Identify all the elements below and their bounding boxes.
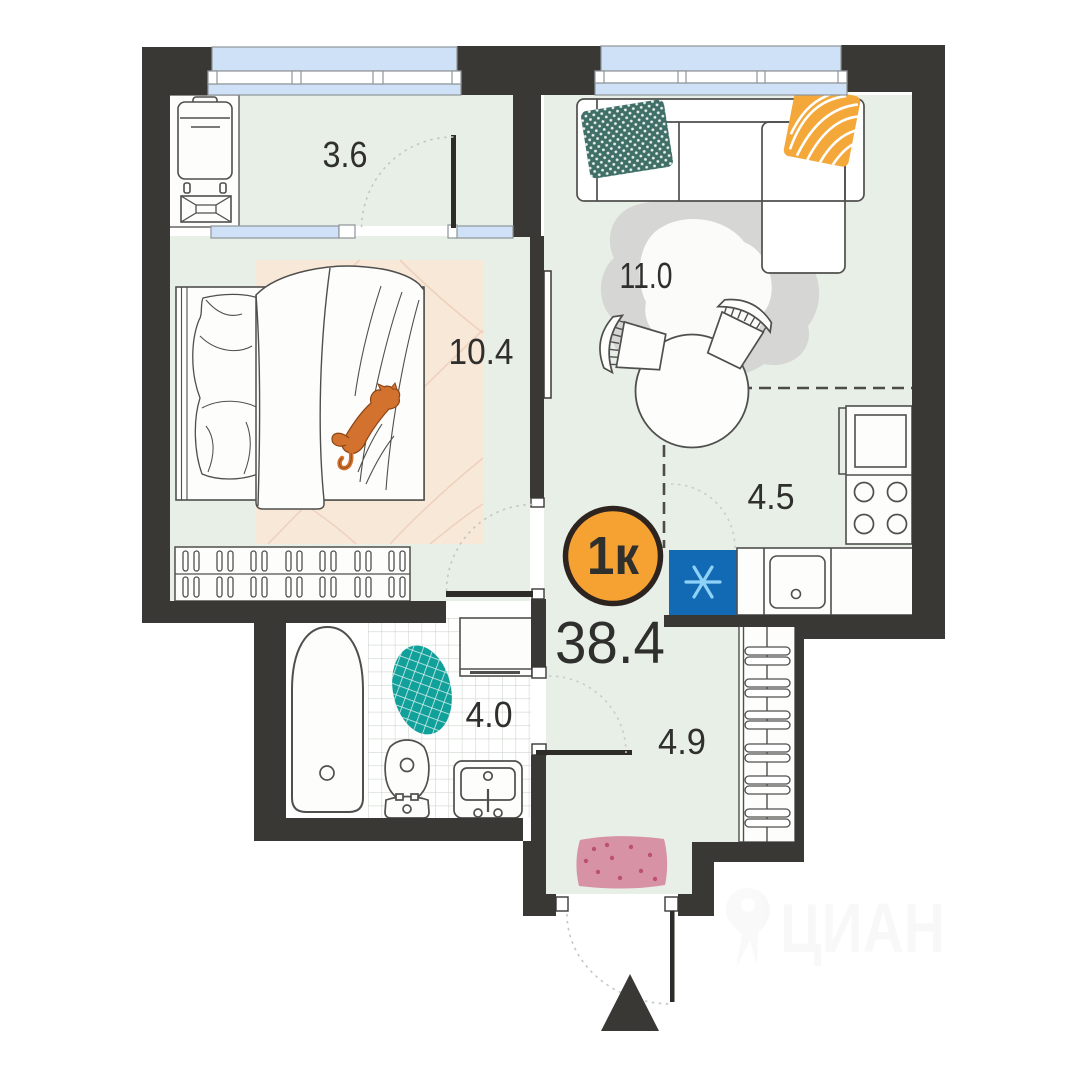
svg-text:4.9: 4.9 bbox=[658, 721, 706, 762]
svg-text:4.5: 4.5 bbox=[748, 476, 795, 517]
svg-text:ЦИАН: ЦИАН bbox=[780, 889, 945, 967]
svg-text:3.6: 3.6 bbox=[323, 134, 368, 175]
svg-text:38.4: 38.4 bbox=[555, 610, 665, 676]
svg-text:1к: 1к bbox=[587, 526, 640, 586]
svg-text:11.0: 11.0 bbox=[620, 255, 673, 296]
svg-text:10.4: 10.4 bbox=[449, 331, 514, 372]
svg-text:4.0: 4.0 bbox=[466, 694, 513, 735]
